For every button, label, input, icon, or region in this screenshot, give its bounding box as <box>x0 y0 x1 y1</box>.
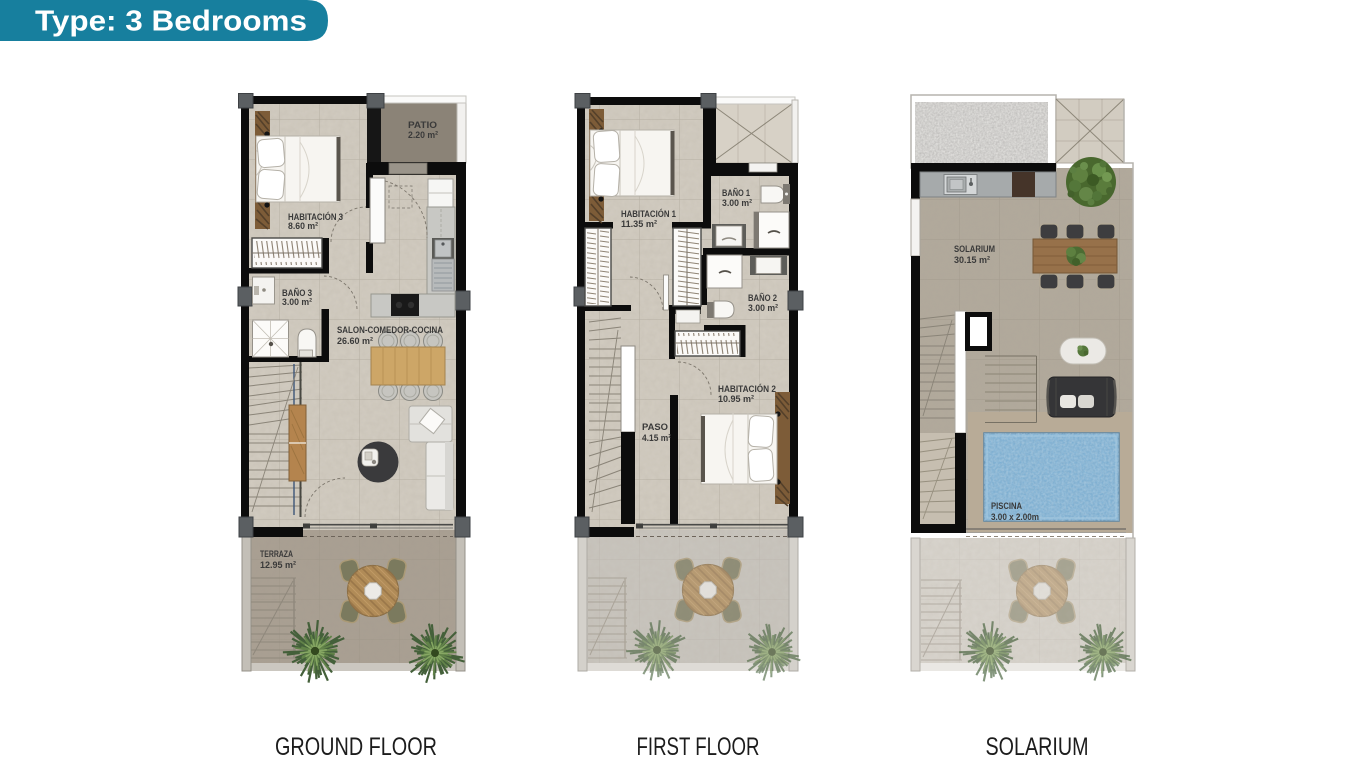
svg-text:HABITACIÓN 1: HABITACIÓN 1 <box>621 208 676 219</box>
svg-text:26.60 m²: 26.60 m² <box>337 336 373 346</box>
svg-text:FIRST FLOOR: FIRST FLOOR <box>637 733 760 761</box>
svg-text:12.95 m²: 12.95 m² <box>260 560 296 570</box>
svg-text:BAÑO 2: BAÑO 2 <box>748 293 777 303</box>
svg-text:2.20 m²: 2.20 m² <box>408 130 438 140</box>
svg-text:3.00 m²: 3.00 m² <box>282 297 312 307</box>
svg-text:PATIO: PATIO <box>408 120 437 130</box>
svg-text:SOLARIUM: SOLARIUM <box>954 244 995 254</box>
svg-text:4.15 m²: 4.15 m² <box>642 433 671 443</box>
svg-text:SALON-COMEDOR-COCINA: SALON-COMEDOR-COCINA <box>337 325 443 335</box>
svg-text:TERRAZA: TERRAZA <box>260 549 293 559</box>
svg-text:SOLARIUM: SOLARIUM <box>986 733 1089 761</box>
svg-text:3.00 m²: 3.00 m² <box>748 303 778 313</box>
svg-text:8.60 m²: 8.60 m² <box>288 221 318 231</box>
svg-text:GROUND FLOOR: GROUND FLOOR <box>275 733 437 761</box>
svg-text:10.95 m²: 10.95 m² <box>718 394 754 404</box>
svg-text:PISCINA: PISCINA <box>991 501 1022 511</box>
svg-text:3.00 x 2.00m: 3.00 x 2.00m <box>991 512 1039 522</box>
svg-text:30.15 m²: 30.15 m² <box>954 255 990 265</box>
svg-text:11.35 m²: 11.35 m² <box>621 219 657 229</box>
svg-text:PASO: PASO <box>642 422 668 432</box>
svg-text:3.00 m²: 3.00 m² <box>722 198 752 208</box>
svg-text:Type: 3 Bedrooms: Type: 3 Bedrooms <box>35 6 307 38</box>
svg-text:HABITACIÓN 2: HABITACIÓN 2 <box>718 383 776 394</box>
svg-text:BAÑO 1: BAÑO 1 <box>722 188 750 198</box>
